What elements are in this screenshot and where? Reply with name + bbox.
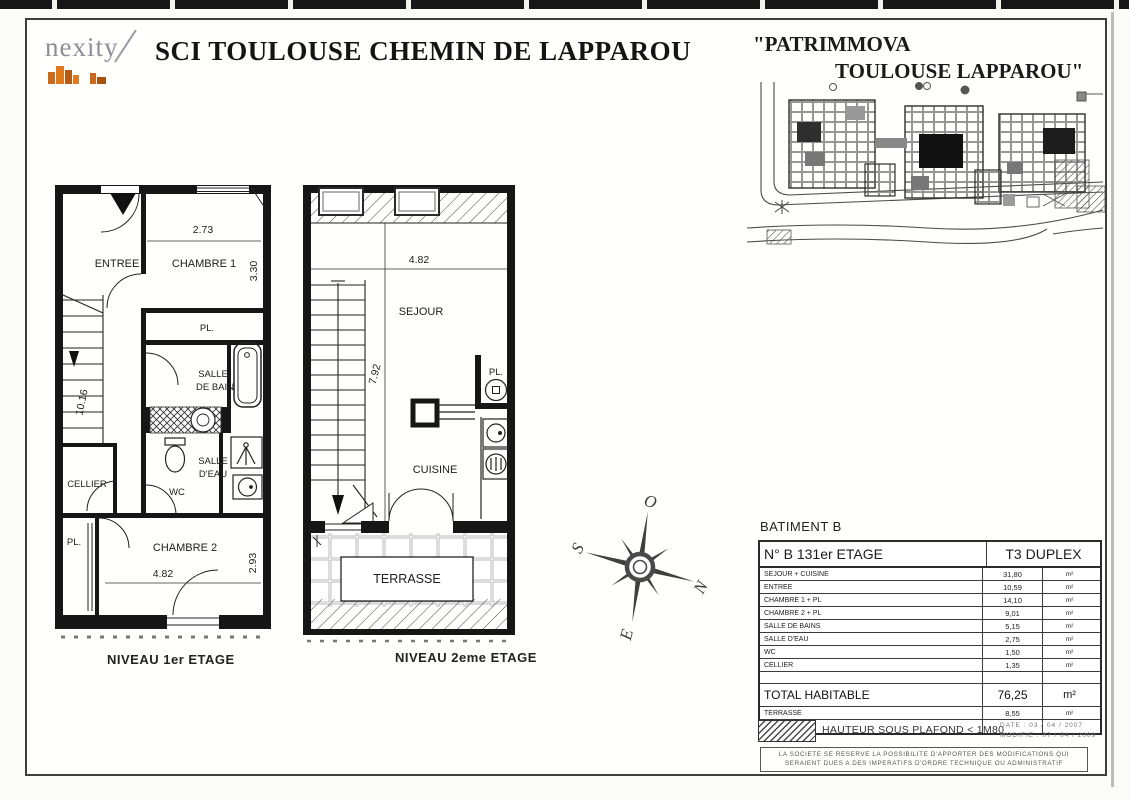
table-row: SALLE DE BAINS 5,15 m² (760, 620, 1100, 633)
sink-icon (233, 475, 262, 499)
room-label-salle-de-bain-1: SALLE (198, 369, 228, 380)
date-block: DATE : 03 / 04 / 2007 MODIFIE : 07 / 04 … (1000, 721, 1096, 741)
row-unit: m² (1042, 594, 1096, 606)
project-title-line1: "PATRIMMOVA (753, 32, 1105, 57)
row-label: CHAMBRE 2 + PL (760, 607, 982, 619)
terrace-wall (311, 521, 507, 533)
table-row: CELLIER 1,35 m² (760, 659, 1100, 672)
kitchen-sink-icon (483, 419, 509, 447)
dim-chambre2-width: 4.82 (153, 568, 174, 580)
table-terrasse-row: TERRASSE 8,55 m² (760, 707, 1100, 720)
terrace-hatch (311, 599, 507, 629)
compass-rose: O S N E (570, 493, 710, 643)
cooktop-icon (483, 449, 509, 479)
row-label: CHAMBRE 1 + PL (760, 594, 982, 606)
row-unit: m² (1042, 659, 1096, 671)
legend-text: HAUTEUR SOUS PLAFOND < 1M80 (822, 724, 1004, 736)
site-building-2 (905, 106, 983, 198)
total-label: TOTAL HABITABLE (760, 684, 982, 706)
toilet-icon (165, 438, 185, 472)
row-unit: m² (1042, 568, 1096, 580)
row-value: 1,50 (982, 646, 1042, 658)
row-value: 14,10 (982, 594, 1042, 606)
row-label: WC (760, 646, 982, 658)
room-label-pl: PL. (489, 367, 503, 378)
room-label-sejour: SEJOUR (399, 306, 444, 318)
nexity-logo-text: nexity (45, 32, 119, 63)
row-label: SEJOUR + CUISINE (760, 568, 982, 580)
compass-south-label: S (570, 540, 588, 557)
sheet-title: SCI TOULOUSE CHEMIN DE LAPPAROU (155, 36, 715, 67)
stairs-level1 (63, 295, 103, 443)
room-label-chambre1: CHAMBRE 1 (172, 258, 236, 270)
disclaimer-line1: LA SOCIETE SE RESERVE LA POSSIBILITE D'A… (763, 751, 1085, 760)
room-label-salle-deau-2: D'EAU (199, 469, 227, 480)
disclaimer-box: LA SOCIETE SE RESERVE LA POSSIBILITE D'A… (760, 747, 1088, 772)
stair-door-leaf (343, 503, 373, 523)
table-row: ENTREE 10,59 m² (760, 581, 1100, 594)
stairs-down-arrow-icon (332, 495, 344, 515)
row-label: SALLE DE BAINS (760, 620, 982, 632)
compass-north-label: N (689, 576, 710, 597)
site-hatch-zone-2 (1077, 186, 1105, 212)
floor-plan-level-2: 4.82 SEJOUR 7.92 PL. CUISINE TERRASSE (303, 185, 515, 645)
room-label-entree: ENTREE (95, 258, 140, 270)
project-title: "PATRIMMOVA TOULOUSE LAPPAROU" (753, 32, 1105, 84)
room-label-cellier: CELLIER (67, 479, 107, 490)
row-unit: m² (1042, 607, 1096, 619)
dim-sejour-height: 7.92 (367, 363, 384, 386)
room-label-pl-top: PL. (200, 323, 214, 334)
row-value: 10,59 (982, 581, 1042, 593)
disclaimer-line2: SERAIENT DUES A DES IMPERATIFS D'ORDRE T… (763, 760, 1085, 769)
table-total-row: TOTAL HABITABLE 76,25 m² (760, 684, 1100, 707)
entrance-arrow-icon (110, 193, 136, 215)
row-unit: m² (1042, 633, 1096, 645)
shower-icon (231, 437, 262, 468)
bathtub-icon (234, 343, 261, 407)
dim-chambre1-height: 3.30 (248, 261, 260, 282)
room-label-terrasse: TERRASSE (373, 572, 440, 586)
area-summary-table: N° B 13 1er ETAGE T3 DUPLEX SEJOUR + CUI… (758, 540, 1102, 735)
washbasin-icon (191, 408, 215, 432)
unit-type: T3 DUPLEX (986, 542, 1100, 566)
table-header-row: N° B 13 1er ETAGE T3 DUPLEX (760, 542, 1100, 568)
dim-chambre2-height: 2.93 (247, 553, 259, 574)
stairs-down-arrow-icon (69, 351, 79, 367)
total-unit: m² (1042, 684, 1096, 706)
table-row: SEJOUR + CUISINE 31,80 m² (760, 568, 1100, 581)
compass-west-label: O (642, 493, 659, 512)
scan-artifact-page-edge (1111, 12, 1114, 787)
stairs-level2 (311, 280, 377, 517)
building-label: BATIMENT B (760, 519, 842, 534)
row-value: 31,80 (982, 568, 1042, 580)
project-title-line2: TOULOUSE LAPPAROU" (753, 59, 1105, 84)
terrasse-value: 8,55 (982, 707, 1042, 719)
floor-plan-level-1: ENTREE CHAMBRE 1 2.73 3.30 PL. SALLE DE … (55, 185, 271, 647)
closet-doors (88, 523, 92, 611)
site-annex-1 (865, 164, 895, 196)
room-label-wc: WC (169, 487, 185, 498)
caption-level1: NIVEAU 1er ETAGE (107, 652, 235, 667)
row-value: 2,75 (982, 633, 1042, 645)
compass-hub (627, 554, 653, 580)
site-tree-icons (830, 83, 1104, 102)
terrasse-label: TERRASSE (760, 707, 982, 719)
site-block-gray (1003, 194, 1015, 206)
sheet-frame: nexity SCI TOULOUSE CHEMIN DE LAPPAROU "… (25, 18, 1107, 776)
room-label-salle-de-bain-2: DE BAIN (196, 382, 234, 393)
site-plan (747, 82, 1105, 272)
table-row: CHAMBRE 2 + PL 9,01 m² (760, 607, 1100, 620)
unit-number: N° B 13 (764, 546, 812, 562)
legend-row: HAUTEUR SOUS PLAFOND < 1M80 DATE : 03 / … (758, 720, 1098, 744)
row-label: SALLE D'EAU (760, 633, 982, 645)
table-row: WC 1,50 m² (760, 646, 1100, 659)
room-label-pl-bottom: PL. (67, 537, 81, 548)
nexity-bars-icon (48, 66, 106, 84)
nexity-logo: nexity (43, 28, 148, 90)
site-annex-3 (975, 170, 1001, 204)
dim-sejour-width: 4.82 (409, 254, 430, 266)
table-row: SALLE D'EAU 2,75 m² (760, 633, 1100, 646)
row-value: 1,35 (982, 659, 1042, 671)
kitchen-counter (413, 401, 475, 425)
caption-level2: NIVEAU 2eme ETAGE (395, 650, 537, 665)
site-star-symbol (775, 200, 789, 214)
room-label-chambre2: CHAMBRE 2 (153, 542, 217, 554)
site-building-1 (789, 100, 875, 188)
date-modified: MODIFIE : 07 / 04 / 2009 (1000, 731, 1096, 741)
compass-east-label: E (616, 627, 637, 643)
row-label: CELLIER (760, 659, 982, 671)
room-label-salle-deau-1: SALLE (198, 456, 228, 467)
terrasse-unit: m² (1042, 707, 1096, 719)
row-unit: m² (1042, 581, 1096, 593)
dim-chambre1-width: 2.73 (193, 224, 214, 236)
date-created: DATE : 03 / 04 / 2007 (1000, 721, 1096, 731)
table-row: CHAMBRE 1 + PL 14,10 m² (760, 594, 1100, 607)
total-value: 76,25 (982, 684, 1042, 706)
scan-artifact-top-bar (0, 0, 1129, 9)
washing-machine-icon (486, 380, 507, 401)
row-unit: m² (1042, 646, 1096, 658)
room-label-cuisine: CUISINE (413, 464, 458, 476)
row-value: 5,15 (982, 620, 1042, 632)
unit-floor: 1er ETAGE (812, 546, 883, 562)
site-hatch-zone-3 (767, 230, 791, 244)
site-link-2 (893, 138, 907, 148)
row-label: ENTREE (760, 581, 982, 593)
row-value: 9,01 (982, 607, 1042, 619)
table-spacer-row (760, 672, 1100, 684)
row-unit: m² (1042, 620, 1096, 632)
low-ceiling-hatch-icon (758, 720, 816, 742)
